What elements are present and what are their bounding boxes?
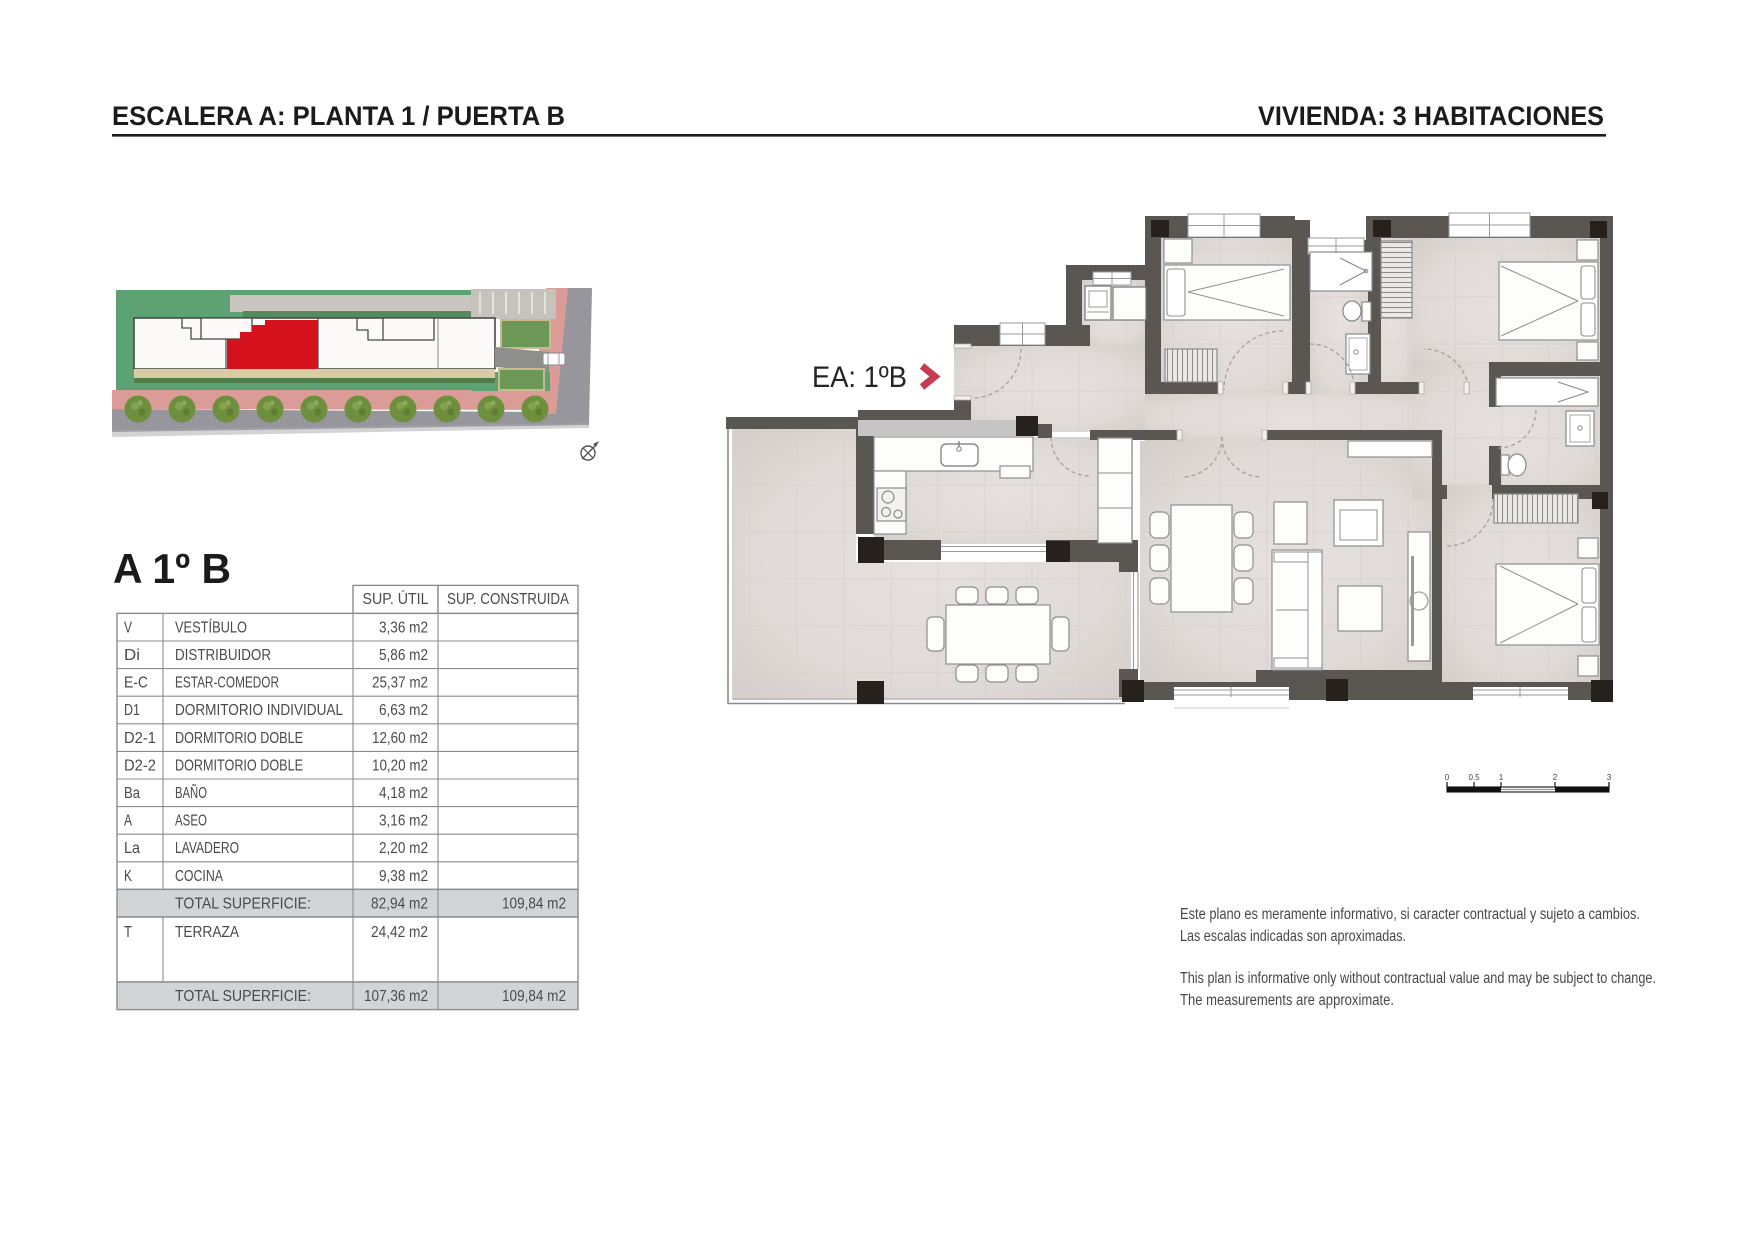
svg-text:DORMITORIO DOBLE: DORMITORIO DOBLE <box>175 757 303 774</box>
svg-text:K: K <box>124 868 133 885</box>
svg-text:SUP. CONSTRUIDA: SUP. CONSTRUIDA <box>447 591 570 608</box>
svg-text:4,18 m2: 4,18 m2 <box>379 785 428 802</box>
svg-text:TOTAL SUPERFICIE:: TOTAL SUPERFICIE: <box>175 895 311 912</box>
svg-text:ASEO: ASEO <box>175 813 207 830</box>
svg-text:2,20 m2: 2,20 m2 <box>379 840 428 857</box>
svg-text:ESCALERA A: PLANTA 1 / PUERTA: ESCALERA A: PLANTA 1 / PUERTA B <box>112 101 565 131</box>
svg-text:VIVIENDA: 3 HABITACIONES: VIVIENDA: 3 HABITACIONES <box>1258 101 1604 131</box>
svg-text:109,84 m2: 109,84 m2 <box>502 988 566 1005</box>
svg-text:25,37 m2: 25,37 m2 <box>372 675 428 692</box>
svg-text:DISTRIBUIDOR: DISTRIBUIDOR <box>175 647 271 664</box>
svg-text:Ba: Ba <box>124 785 140 802</box>
svg-text:DORMITORIO INDIVIDUAL: DORMITORIO INDIVIDUAL <box>175 702 343 719</box>
svg-text:0: 0 <box>1445 773 1450 782</box>
svg-text:COCINA: COCINA <box>175 868 224 885</box>
svg-text:V: V <box>124 619 133 636</box>
svg-text:82,94 m2: 82,94 m2 <box>371 895 428 912</box>
svg-text:T: T <box>124 924 132 941</box>
svg-text:This plan is informative only: This plan is informative only without co… <box>1180 970 1656 987</box>
svg-text:3,36 m2: 3,36 m2 <box>379 619 428 636</box>
svg-text:12,60 m2: 12,60 m2 <box>372 730 428 747</box>
svg-text:EA: 1ºB: EA: 1ºB <box>812 361 907 394</box>
svg-text:A 1º B: A 1º B <box>113 545 231 592</box>
svg-text:DORMITORIO DOBLE: DORMITORIO DOBLE <box>175 730 303 747</box>
svg-text:TERRAZA: TERRAZA <box>175 924 240 941</box>
svg-text:SUP. ÚTIL: SUP. ÚTIL <box>363 591 429 608</box>
svg-text:9,38 m2: 9,38 m2 <box>379 868 428 885</box>
svg-text:D1: D1 <box>124 702 140 719</box>
svg-text:Este plano es meramente inform: Este plano es meramente informativo, si … <box>1180 906 1640 923</box>
svg-text:La: La <box>124 840 140 857</box>
svg-text:0.5: 0.5 <box>1468 773 1480 782</box>
svg-text:1: 1 <box>1499 773 1504 782</box>
svg-text:D2-1: D2-1 <box>124 730 156 747</box>
svg-text:The measurements are approxima: The measurements are approximate. <box>1180 992 1394 1009</box>
svg-text:5,86 m2: 5,86 m2 <box>379 647 428 664</box>
svg-text:Las escalas indicadas son apro: Las escalas indicadas son aproximadas. <box>1180 928 1406 945</box>
svg-text:A: A <box>124 813 133 830</box>
svg-text:10,20 m2: 10,20 m2 <box>372 757 428 774</box>
svg-text:VESTÍBULO: VESTÍBULO <box>175 619 247 636</box>
svg-text:BAÑO: BAÑO <box>175 785 207 802</box>
svg-text:6,63 m2: 6,63 m2 <box>379 702 428 719</box>
svg-text:E-C: E-C <box>124 675 148 692</box>
svg-text:109,84 m2: 109,84 m2 <box>502 895 566 912</box>
svg-text:24,42 m2: 24,42 m2 <box>371 924 428 941</box>
svg-text:3,16 m2: 3,16 m2 <box>379 813 428 830</box>
svg-text:TOTAL SUPERFICIE:: TOTAL SUPERFICIE: <box>175 988 311 1005</box>
svg-text:3: 3 <box>1607 773 1612 782</box>
svg-text:Di: Di <box>124 647 140 664</box>
svg-text:D2-2: D2-2 <box>124 757 156 774</box>
svg-text:2: 2 <box>1553 773 1558 782</box>
svg-text:ESTAR-COMEDOR: ESTAR-COMEDOR <box>175 675 279 692</box>
svg-text:107,36 m2: 107,36 m2 <box>364 988 428 1005</box>
svg-text:LAVADERO: LAVADERO <box>175 840 239 857</box>
